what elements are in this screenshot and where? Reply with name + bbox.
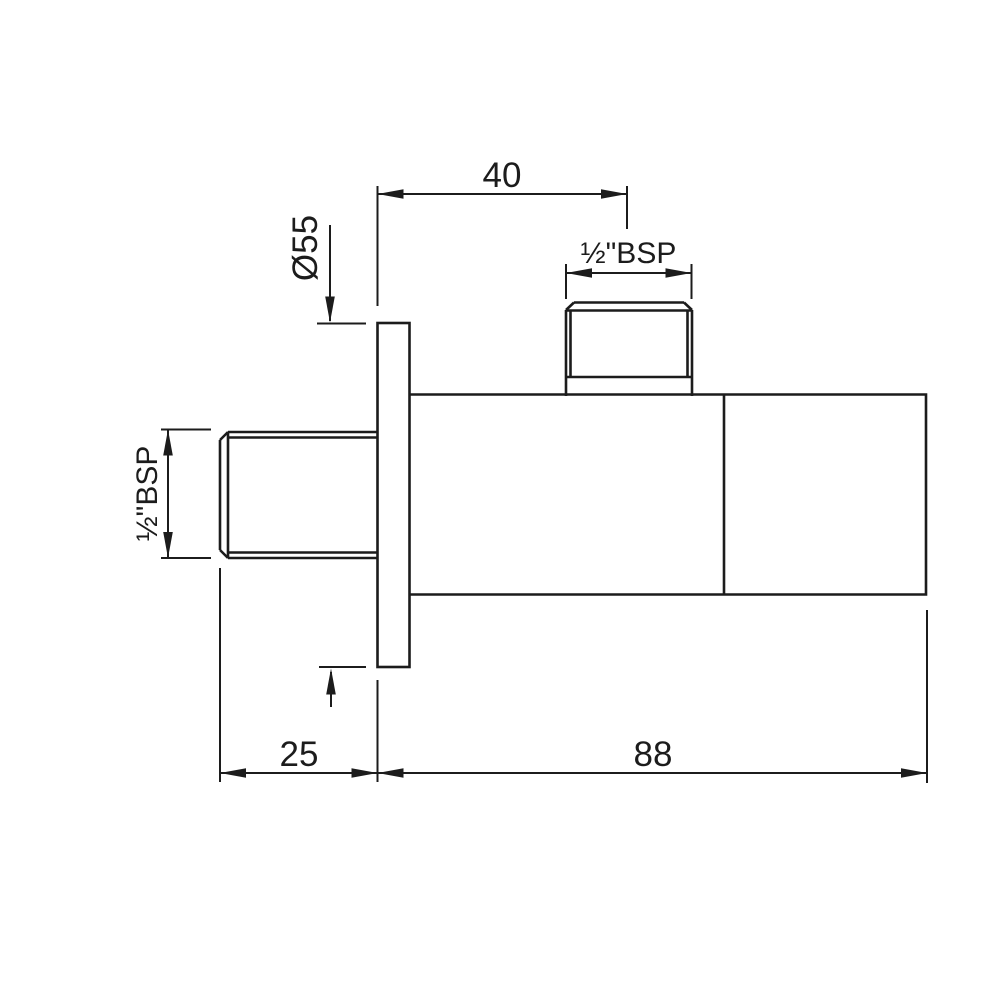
dim-value-side-thread: ½"BSP [131, 446, 164, 542]
dim-value-top-offset: 40 [483, 156, 522, 195]
arrowhead-right [601, 189, 627, 199]
arrowhead-right [352, 768, 378, 778]
dim-value-flange-diameter: Ø55 [286, 215, 325, 281]
dimension-flange-diameter: Ø55 [286, 215, 366, 707]
dimension-top-offset: 40 [378, 156, 628, 306]
dim-value-body-length: 88 [634, 735, 673, 774]
angle-valve-dimension-drawing: 40 Ø55 ½"BSP ½"BSP [0, 0, 1000, 1000]
arrowhead-left [378, 189, 404, 199]
left-threaded-inlet [220, 432, 378, 558]
wall-flange-outline [378, 323, 410, 667]
dimension-side-thread: ½"BSP [131, 430, 211, 559]
valve-body [410, 395, 927, 595]
dim-value-top-thread: ½"BSP [581, 237, 677, 270]
arrowhead-left [220, 768, 246, 778]
arrowhead-up [163, 430, 173, 456]
dimension-top-thread: ½"BSP [566, 237, 692, 299]
top-thread-right-chamfer [684, 303, 692, 311]
dimension-wall-distance: 25 [220, 568, 378, 782]
top-thread-left-chamfer [566, 303, 574, 311]
arrowhead-right [901, 768, 927, 778]
arrowhead-down [325, 297, 335, 323]
top-threaded-outlet [566, 303, 692, 397]
dimension-body-length: 88 [378, 610, 928, 783]
wall-flange [378, 323, 410, 667]
technical-drawing-canvas: 40 Ø55 ½"BSP ½"BSP [0, 0, 1000, 1000]
arrowhead-down [163, 532, 173, 558]
dim-value-wall-distance: 25 [280, 735, 319, 774]
arrowhead-left [378, 768, 404, 778]
valve-body-outline [410, 395, 927, 595]
